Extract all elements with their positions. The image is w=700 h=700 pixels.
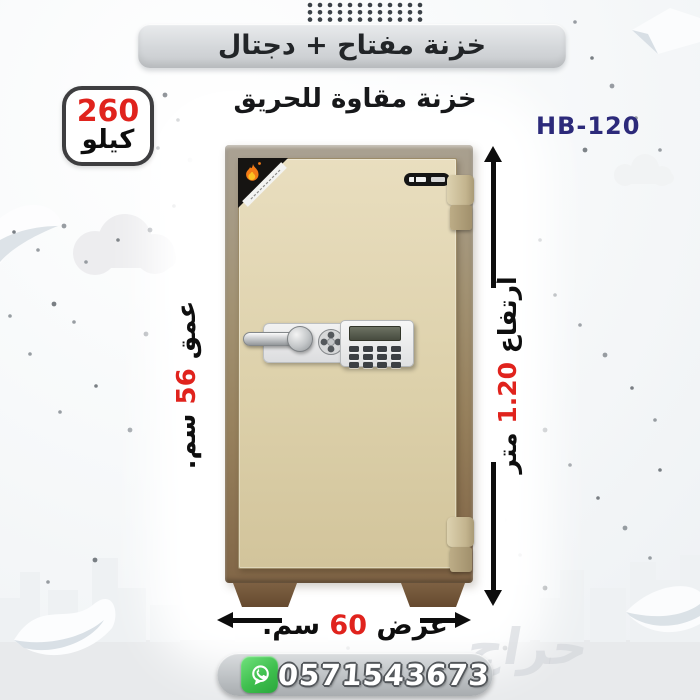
width-arrowhead-left (217, 612, 233, 628)
subtitle: خزنة مقاوة للحريق (200, 84, 510, 114)
brand-label (404, 173, 450, 186)
safe-product-image (225, 145, 473, 583)
height-arrow-line-bottom (491, 462, 496, 592)
hinge-bottom (447, 517, 474, 572)
height-label: أرتفاع 1.20 متر (493, 275, 523, 475)
width-label: عرض 60 سم. (260, 610, 450, 641)
phone-number: 0571543673 (277, 658, 505, 692)
width-arrow-line-right (420, 618, 456, 623)
fire-resistant-sticker (238, 158, 290, 210)
safe-foot-right (401, 583, 465, 607)
weight-unit: كيلو (82, 127, 135, 154)
digital-keypad (340, 320, 414, 367)
keypad-display (349, 326, 401, 341)
height-arrowhead-down (484, 590, 502, 606)
model-code: HB-120 (536, 112, 640, 140)
handle-boss (287, 326, 313, 352)
hinge-top (447, 175, 474, 230)
keypad-buttons (349, 346, 401, 368)
height-arrowhead-up (484, 146, 502, 162)
weight-badge: 260 كيلو (62, 86, 154, 166)
banner-title: خزنة مفتاح + دجتال (138, 24, 566, 68)
whatsapp-icon (241, 656, 278, 693)
height-arrow-line-top (491, 161, 496, 288)
depth-label: عمق 56 سم. (172, 297, 202, 473)
width-arrowhead-right (455, 612, 471, 628)
safe-foot-left (233, 583, 297, 607)
whatsapp-contact-button[interactable]: 0571543673 (217, 653, 493, 696)
weight-value: 260 (77, 97, 140, 127)
advert-canvas: خزنة مفتاح + دجتال خزنة مقاوة للحريق HB-… (0, 0, 700, 700)
